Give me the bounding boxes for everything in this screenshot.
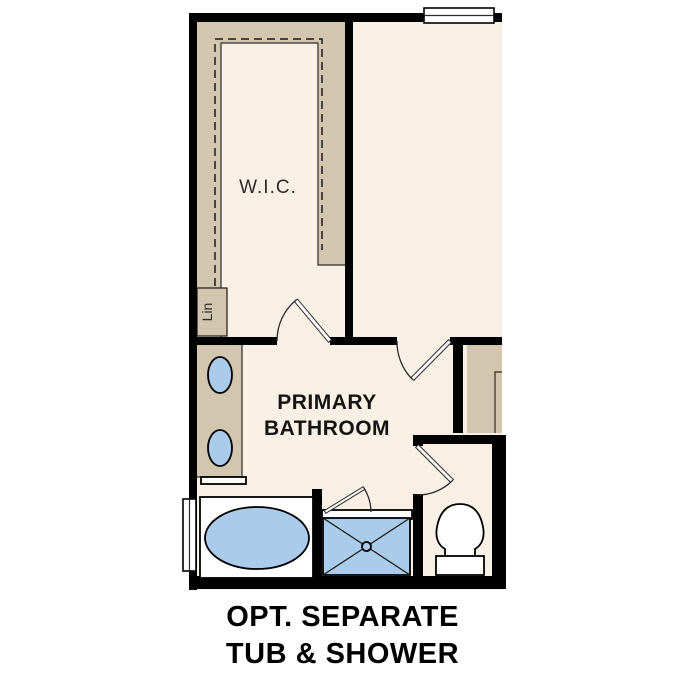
bathroom-top-wall-right: [450, 337, 502, 345]
wic-label: W.I.C.: [239, 177, 297, 198]
water-closet-left-wall-lower: [413, 494, 423, 576]
window-top: [424, 8, 494, 23]
plan-caption-line1: OPT. SEPARATE: [150, 599, 535, 636]
sink-icon: [208, 430, 232, 466]
shower-drain-icon: [362, 542, 371, 551]
tub-basin: [205, 507, 309, 569]
toilet: [436, 504, 484, 575]
bathroom-label-line2: BATHROOM: [264, 417, 390, 440]
bathroom-top-wall-middle: [330, 337, 397, 345]
water-closet-top-wall: [413, 435, 502, 444]
bedroom-closet: [467, 344, 502, 433]
bathtub: [200, 497, 313, 578]
plan-caption: OPT. SEPARATE TUB & SHOWER: [150, 599, 535, 673]
closet-divider-wall: [453, 345, 463, 433]
floor-plan: W.I.C. Lin PRIMARY BATHROOM: [0, 0, 687, 687]
sink-icon: [208, 357, 232, 393]
plan-caption-line2: TUB & SHOWER: [150, 636, 535, 673]
bathroom-label-line1: PRIMARY: [277, 391, 377, 414]
shower: [322, 510, 412, 575]
wic-bedroom-divider-wall: [345, 13, 353, 345]
toilet-tank: [436, 556, 484, 575]
wic-shelf-left: [197, 22, 221, 288]
window-left: [183, 499, 196, 571]
right-wall: [492, 435, 506, 589]
bedroom-closet-shelf: [467, 344, 502, 433]
linen-label: Lin: [199, 303, 215, 322]
vanity-front-edge: [201, 477, 246, 484]
bathroom-top-wall-left: [189, 337, 277, 345]
floor-plan-drawing: W.I.C. Lin PRIMARY BATHROOM: [0, 0, 687, 687]
